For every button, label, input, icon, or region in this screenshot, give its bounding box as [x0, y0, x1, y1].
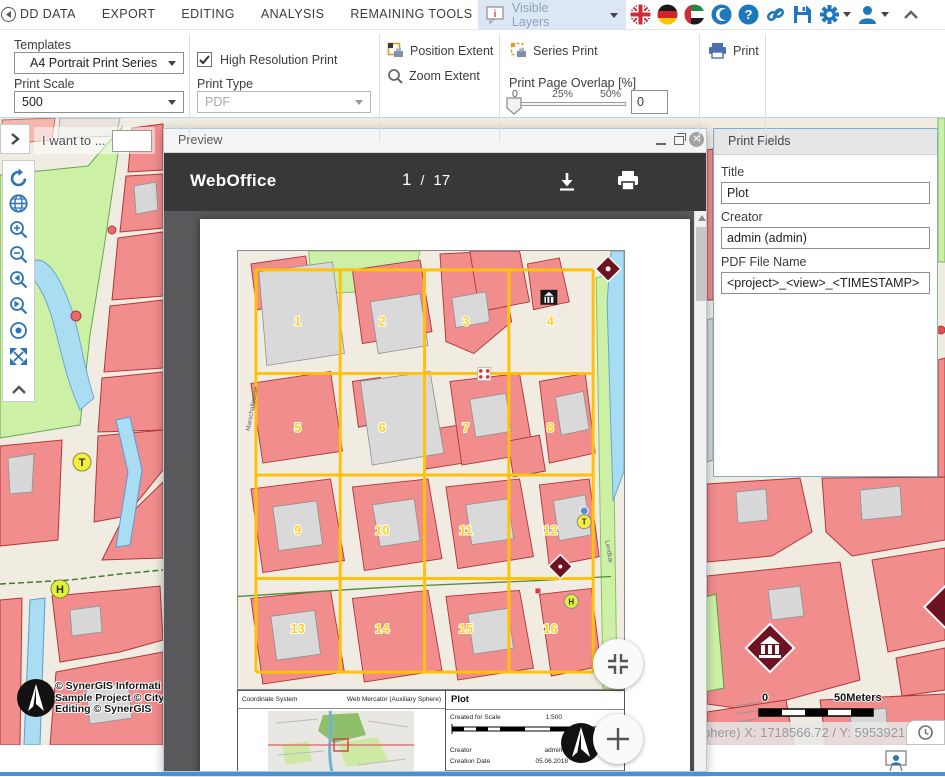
- tram-stop-marker[interactable]: T: [73, 453, 91, 471]
- creator-label: Creator: [450, 747, 472, 754]
- download-button[interactable]: [556, 170, 578, 197]
- high-res-checkbox[interactable]: [197, 52, 212, 67]
- visible-layers-dropdown[interactable]: i Visible Layers: [478, 0, 626, 30]
- zoom-next-button[interactable]: [7, 294, 31, 316]
- coordinate-system-value: Web Mercator (Auxiliary Sphere): [347, 696, 441, 703]
- settings-gear-icon: [819, 4, 840, 25]
- svg-text:2: 2: [379, 314, 386, 329]
- flag-germany-icon[interactable]: [657, 4, 678, 25]
- print-preview-button[interactable]: [616, 169, 640, 198]
- minimize-button[interactable]: [656, 143, 666, 145]
- globe-icon: [8, 193, 29, 214]
- zoom-next-icon: [8, 295, 29, 316]
- position-extent-icon: [387, 42, 404, 59]
- zoom-previous-icon: [8, 269, 29, 290]
- map-copyright: © SynerGIS Informati Sample Project © Ci…: [55, 681, 164, 716]
- slider-handle[interactable]: [506, 97, 522, 115]
- scroll-up-arrow[interactable]: [698, 215, 706, 221]
- flag-uae-icon[interactable]: [684, 4, 705, 25]
- grid-vertex-handle[interactable]: [478, 367, 491, 380]
- scale-label: Created for Scale: [450, 714, 501, 721]
- sidebar-expand-button[interactable]: [0, 124, 30, 154]
- chevron-up-icon: [11, 385, 27, 395]
- svg-text:T: T: [79, 457, 86, 469]
- help-icon[interactable]: ?: [738, 4, 759, 25]
- globe-button[interactable]: [7, 192, 31, 214]
- svg-text:10: 10: [375, 523, 389, 538]
- full-extent-icon: [8, 346, 29, 367]
- svg-text:4: 4: [547, 314, 555, 329]
- scrollbar-thumb[interactable]: [696, 227, 706, 301]
- zoom-in-button[interactable]: [7, 218, 31, 240]
- refresh-button[interactable]: [7, 167, 31, 189]
- svg-text:14: 14: [375, 621, 390, 636]
- map-scalebar: 0 50Meters: [758, 692, 880, 723]
- close-button[interactable]: ✕: [689, 132, 704, 147]
- overlap-input[interactable]: 0: [631, 90, 668, 114]
- center-map-button[interactable]: [7, 320, 31, 342]
- company-name: SynerGIS Informationssysteme GmbH: [446, 770, 624, 771]
- svg-text:8: 8: [547, 420, 554, 435]
- title-field-input[interactable]: Plot: [721, 182, 930, 204]
- overlap-slider[interactable]: 0 25% 50%: [509, 88, 626, 116]
- series-print-button[interactable]: Series Print: [510, 42, 598, 59]
- svg-text:?: ?: [745, 7, 753, 22]
- tab-export[interactable]: EXPORT: [89, 0, 169, 29]
- page-counter: 1 / 17: [402, 170, 450, 190]
- h-stop-marker[interactable]: H: [51, 580, 69, 598]
- collapse-arrows-icon: [607, 653, 629, 675]
- svg-text:7: 7: [462, 420, 469, 435]
- center-point-icon: [8, 320, 29, 341]
- chevron-down-icon: [610, 13, 618, 18]
- user-menu[interactable]: [857, 4, 889, 25]
- window-bottom-border: [0, 772, 945, 776]
- plus-icon: [605, 726, 631, 752]
- tab-add-data[interactable]: DD DATA: [7, 0, 89, 29]
- poi-red-square: [535, 588, 540, 593]
- presentation-icon: [884, 748, 908, 772]
- user-icon: [857, 4, 878, 25]
- title-field-label: Title: [721, 165, 930, 179]
- zoom-extent-button[interactable]: Zoom Extent: [387, 68, 480, 84]
- svg-text:T: T: [582, 518, 587, 527]
- print-fields-header: Print Fields: [714, 129, 937, 155]
- print-fields-panel: Print Fields Title Plot Creator admin (a…: [713, 128, 938, 477]
- svg-text:i: i: [494, 9, 497, 20]
- templates-label: Templates: [14, 38, 71, 52]
- pdf-name-field-label: PDF File Name: [721, 255, 930, 269]
- svg-text:1: 1: [294, 314, 301, 329]
- history-clock-button[interactable]: [906, 720, 945, 745]
- svg-text:12: 12: [543, 523, 557, 538]
- date-label: Creation Date: [450, 758, 490, 765]
- svg-text:H: H: [568, 597, 574, 606]
- templates-select[interactable]: A4 Portrait Print Series: [14, 52, 184, 74]
- clock-icon: [917, 724, 934, 741]
- scalebar-graphic: [758, 707, 880, 718]
- full-extent-button[interactable]: [7, 345, 31, 367]
- zoom-in-page-button[interactable]: [593, 714, 643, 764]
- svg-text:3: 3: [462, 314, 469, 329]
- print-icon: [708, 42, 727, 59]
- collapse-toolbar-button[interactable]: [7, 379, 31, 401]
- preview-titlebar[interactable]: Preview ✕: [164, 129, 706, 153]
- maximize-button[interactable]: [674, 136, 684, 145]
- plot-title: Plot: [446, 691, 624, 710]
- svg-text:13: 13: [291, 621, 305, 636]
- magnifier-icon: [387, 68, 403, 84]
- north-arrow: [17, 679, 55, 717]
- pdf-name-field-input[interactable]: <project>_<view>_<TIMESTAMP>: [721, 272, 930, 294]
- collapse-ribbon-icon[interactable]: [903, 9, 919, 20]
- flag-uk-icon[interactable]: [630, 4, 651, 25]
- app-title: WebOffice: [190, 171, 276, 191]
- tram-stop-small: T: [577, 515, 591, 529]
- zoom-out-button[interactable]: [7, 243, 31, 265]
- svg-text:11: 11: [459, 523, 473, 538]
- i-want-to-label: I want to ...: [42, 133, 106, 148]
- zoom-previous-button[interactable]: [7, 269, 31, 291]
- i-want-to-input[interactable]: [112, 130, 152, 152]
- preview-header: WebOffice 1 / 17: [164, 153, 706, 211]
- series-print-icon: [510, 42, 527, 59]
- preview-scrollbar[interactable]: [694, 211, 706, 771]
- printer-icon: [616, 169, 640, 193]
- print-button[interactable]: Print: [708, 42, 759, 59]
- svg-text:5: 5: [294, 420, 301, 435]
- print-type-label: Print Type: [197, 77, 253, 91]
- poi-black-building-icon: [540, 290, 557, 305]
- refresh-icon: [8, 168, 29, 189]
- zoom-in-icon: [8, 219, 29, 240]
- info-bubble-icon: i: [486, 6, 505, 24]
- chevron-right-icon: [9, 132, 21, 146]
- preview-body[interactable]: 1 2 3 4 5 6 7 8 9 10 11 12 13 14 15 16: [164, 211, 706, 771]
- scale-value: 1:500: [546, 714, 562, 721]
- print-scale-select[interactable]: 500: [14, 91, 184, 113]
- high-res-label: High Resolution Print: [220, 53, 337, 67]
- map-toolbar: [2, 160, 35, 402]
- save-icon[interactable]: [792, 4, 813, 25]
- ribbon: DD DATA EXPORT EDITING ANALYSIS REMAININ…: [0, 0, 945, 118]
- bus-stop-icon: [580, 507, 588, 515]
- print-scale-label: Print Scale: [14, 77, 74, 91]
- preview-window: Preview ✕ WebOffice 1 / 17: [163, 128, 707, 772]
- svg-text:9: 9: [294, 523, 301, 538]
- i-want-to-search[interactable]: I want to ...: [34, 127, 155, 154]
- creator-field-input[interactable]: admin (admin): [721, 227, 930, 249]
- svg-text:16: 16: [543, 621, 557, 636]
- visible-layers-label: Visible Layers: [512, 1, 589, 29]
- coordinate-system-label: Coordinate System: [242, 696, 297, 703]
- position-extent-button[interactable]: Position Extent: [387, 42, 493, 59]
- tab-editing[interactable]: EDITING: [168, 0, 248, 29]
- settings-menu[interactable]: [819, 4, 851, 25]
- exit-fullscreen-button[interactable]: [593, 639, 643, 689]
- zoom-out-icon: [8, 244, 29, 265]
- crescent-icon[interactable]: [711, 4, 732, 25]
- overview-map-thumbnail: [238, 709, 444, 771]
- creator-field-label: Creator: [721, 210, 930, 224]
- page-map: 1 2 3 4 5 6 7 8 9 10 11 12 13 14 15 16: [237, 250, 625, 690]
- svg-text:H: H: [56, 584, 64, 596]
- svg-text:6: 6: [379, 420, 386, 435]
- download-icon: [556, 170, 578, 192]
- h-stop-small: H: [564, 594, 578, 608]
- svg-text:15: 15: [459, 621, 473, 636]
- print-toolbar: Templates A4 Portrait Print Series Print…: [0, 30, 945, 118]
- tab-remaining-tools[interactable]: REMAINING TOOLS: [337, 0, 485, 29]
- tab-analysis[interactable]: ANALYSIS: [248, 0, 337, 29]
- link-icon[interactable]: [765, 4, 786, 25]
- preview-title: Preview: [178, 133, 222, 147]
- print-type-select[interactable]: PDF: [197, 91, 371, 113]
